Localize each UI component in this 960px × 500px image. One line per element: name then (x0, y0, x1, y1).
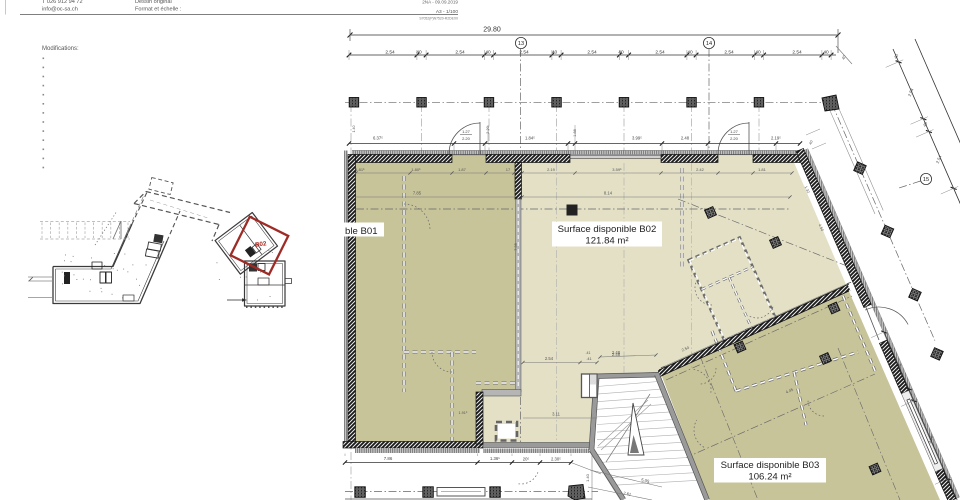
svg-text:2.54: 2.54 (792, 50, 802, 56)
svg-text:Modifications:: Modifications: (42, 46, 79, 52)
svg-text:1.88: 1.88 (573, 129, 577, 136)
svg-text:7.85: 7.85 (413, 191, 422, 196)
svg-text:121.84 m²: 121.84 m² (585, 236, 629, 247)
svg-text:2.54: 2.54 (455, 50, 465, 56)
svg-text:2.42: 2.42 (696, 167, 705, 172)
svg-text:20⁵: 20⁵ (523, 457, 530, 462)
svg-text:1.40: 1.40 (352, 126, 356, 133)
svg-text:2.19⁵: 2.19⁵ (771, 136, 781, 141)
svg-text:T 026 912 94 72: T 026 912 94 72 (42, 0, 83, 5)
svg-text:Format et échelle :: Format et échelle : (135, 7, 182, 13)
svg-text:13: 13 (518, 41, 524, 47)
svg-text:2NA - 09.09.2019: 2NA - 09.09.2019 (422, 0, 458, 5)
svg-text:1.84⁵: 1.84⁵ (525, 136, 535, 141)
svg-text:40: 40 (823, 50, 829, 56)
svg-text:2.20: 2.20 (462, 136, 471, 141)
svg-text:2.48: 2.48 (612, 350, 621, 355)
svg-text:1.81: 1.81 (758, 167, 767, 172)
svg-text:1.40: 1.40 (585, 473, 590, 482)
svg-text:8.14: 8.14 (604, 191, 613, 196)
svg-text:1.36⁵: 1.36⁵ (490, 456, 500, 461)
svg-text:2.54: 2.54 (587, 50, 597, 56)
svg-text:2.54: 2.54 (545, 356, 554, 361)
svg-text:40: 40 (416, 50, 422, 56)
svg-text:1.87: 1.87 (458, 167, 467, 172)
svg-text:7.35: 7.35 (513, 242, 518, 251)
svg-text:14: 14 (706, 41, 712, 47)
svg-text:2.19: 2.19 (547, 167, 556, 172)
svg-text:6.37⁵: 6.37⁵ (373, 136, 383, 141)
svg-text:3.59⁵: 3.59⁵ (612, 167, 622, 172)
svg-text:29.80: 29.80 (483, 27, 501, 34)
svg-text:7.86: 7.86 (384, 456, 393, 461)
svg-text:3.11: 3.11 (552, 412, 561, 417)
svg-text:ble B01: ble B01 (345, 226, 378, 237)
svg-text:17: 17 (506, 167, 511, 172)
svg-text:40: 40 (618, 50, 624, 56)
svg-text:40: 40 (755, 50, 761, 56)
svg-text:2.20: 2.20 (730, 136, 739, 141)
svg-text:4.81⁵: 4.81⁵ (355, 167, 365, 172)
svg-text:info@oc-sa.ch: info@oc-sa.ch (42, 7, 78, 13)
svg-text:2.48: 2.48 (681, 136, 690, 141)
svg-text:3.99⁵: 3.99⁵ (632, 136, 642, 141)
svg-text:Surface disponible B02: Surface disponible B02 (558, 224, 657, 235)
svg-text:15: 15 (923, 177, 929, 183)
svg-text:.41: .41 (586, 351, 591, 355)
svg-text:Dessin original: Dessin original (135, 0, 172, 5)
svg-text:40: 40 (485, 50, 491, 56)
svg-text:2.54: 2.54 (519, 50, 529, 56)
svg-text:2.30⁵: 2.30⁵ (551, 457, 561, 462)
svg-text:2.54: 2.54 (385, 50, 395, 56)
svg-text:40: 40 (687, 50, 693, 56)
svg-text:1.91⁵: 1.91⁵ (459, 411, 468, 415)
svg-text:Surface disponible B03: Surface disponible B03 (721, 460, 820, 471)
svg-text:S7052(P)N7520-R2DEX0: S7052(P)N7520-R2DEX0 (419, 17, 458, 21)
svg-text:1.27: 1.27 (462, 129, 471, 134)
svg-text:.41: .41 (586, 357, 591, 361)
svg-text:40: 40 (552, 50, 558, 56)
svg-text:2.54: 2.54 (724, 50, 734, 56)
svg-text:1.80⁵: 1.80⁵ (411, 167, 421, 172)
svg-text:2.54: 2.54 (655, 50, 665, 56)
svg-text:2.20: 2.20 (486, 126, 490, 133)
svg-text:106.24 m²: 106.24 m² (748, 472, 792, 483)
svg-text:1.27: 1.27 (730, 129, 739, 134)
